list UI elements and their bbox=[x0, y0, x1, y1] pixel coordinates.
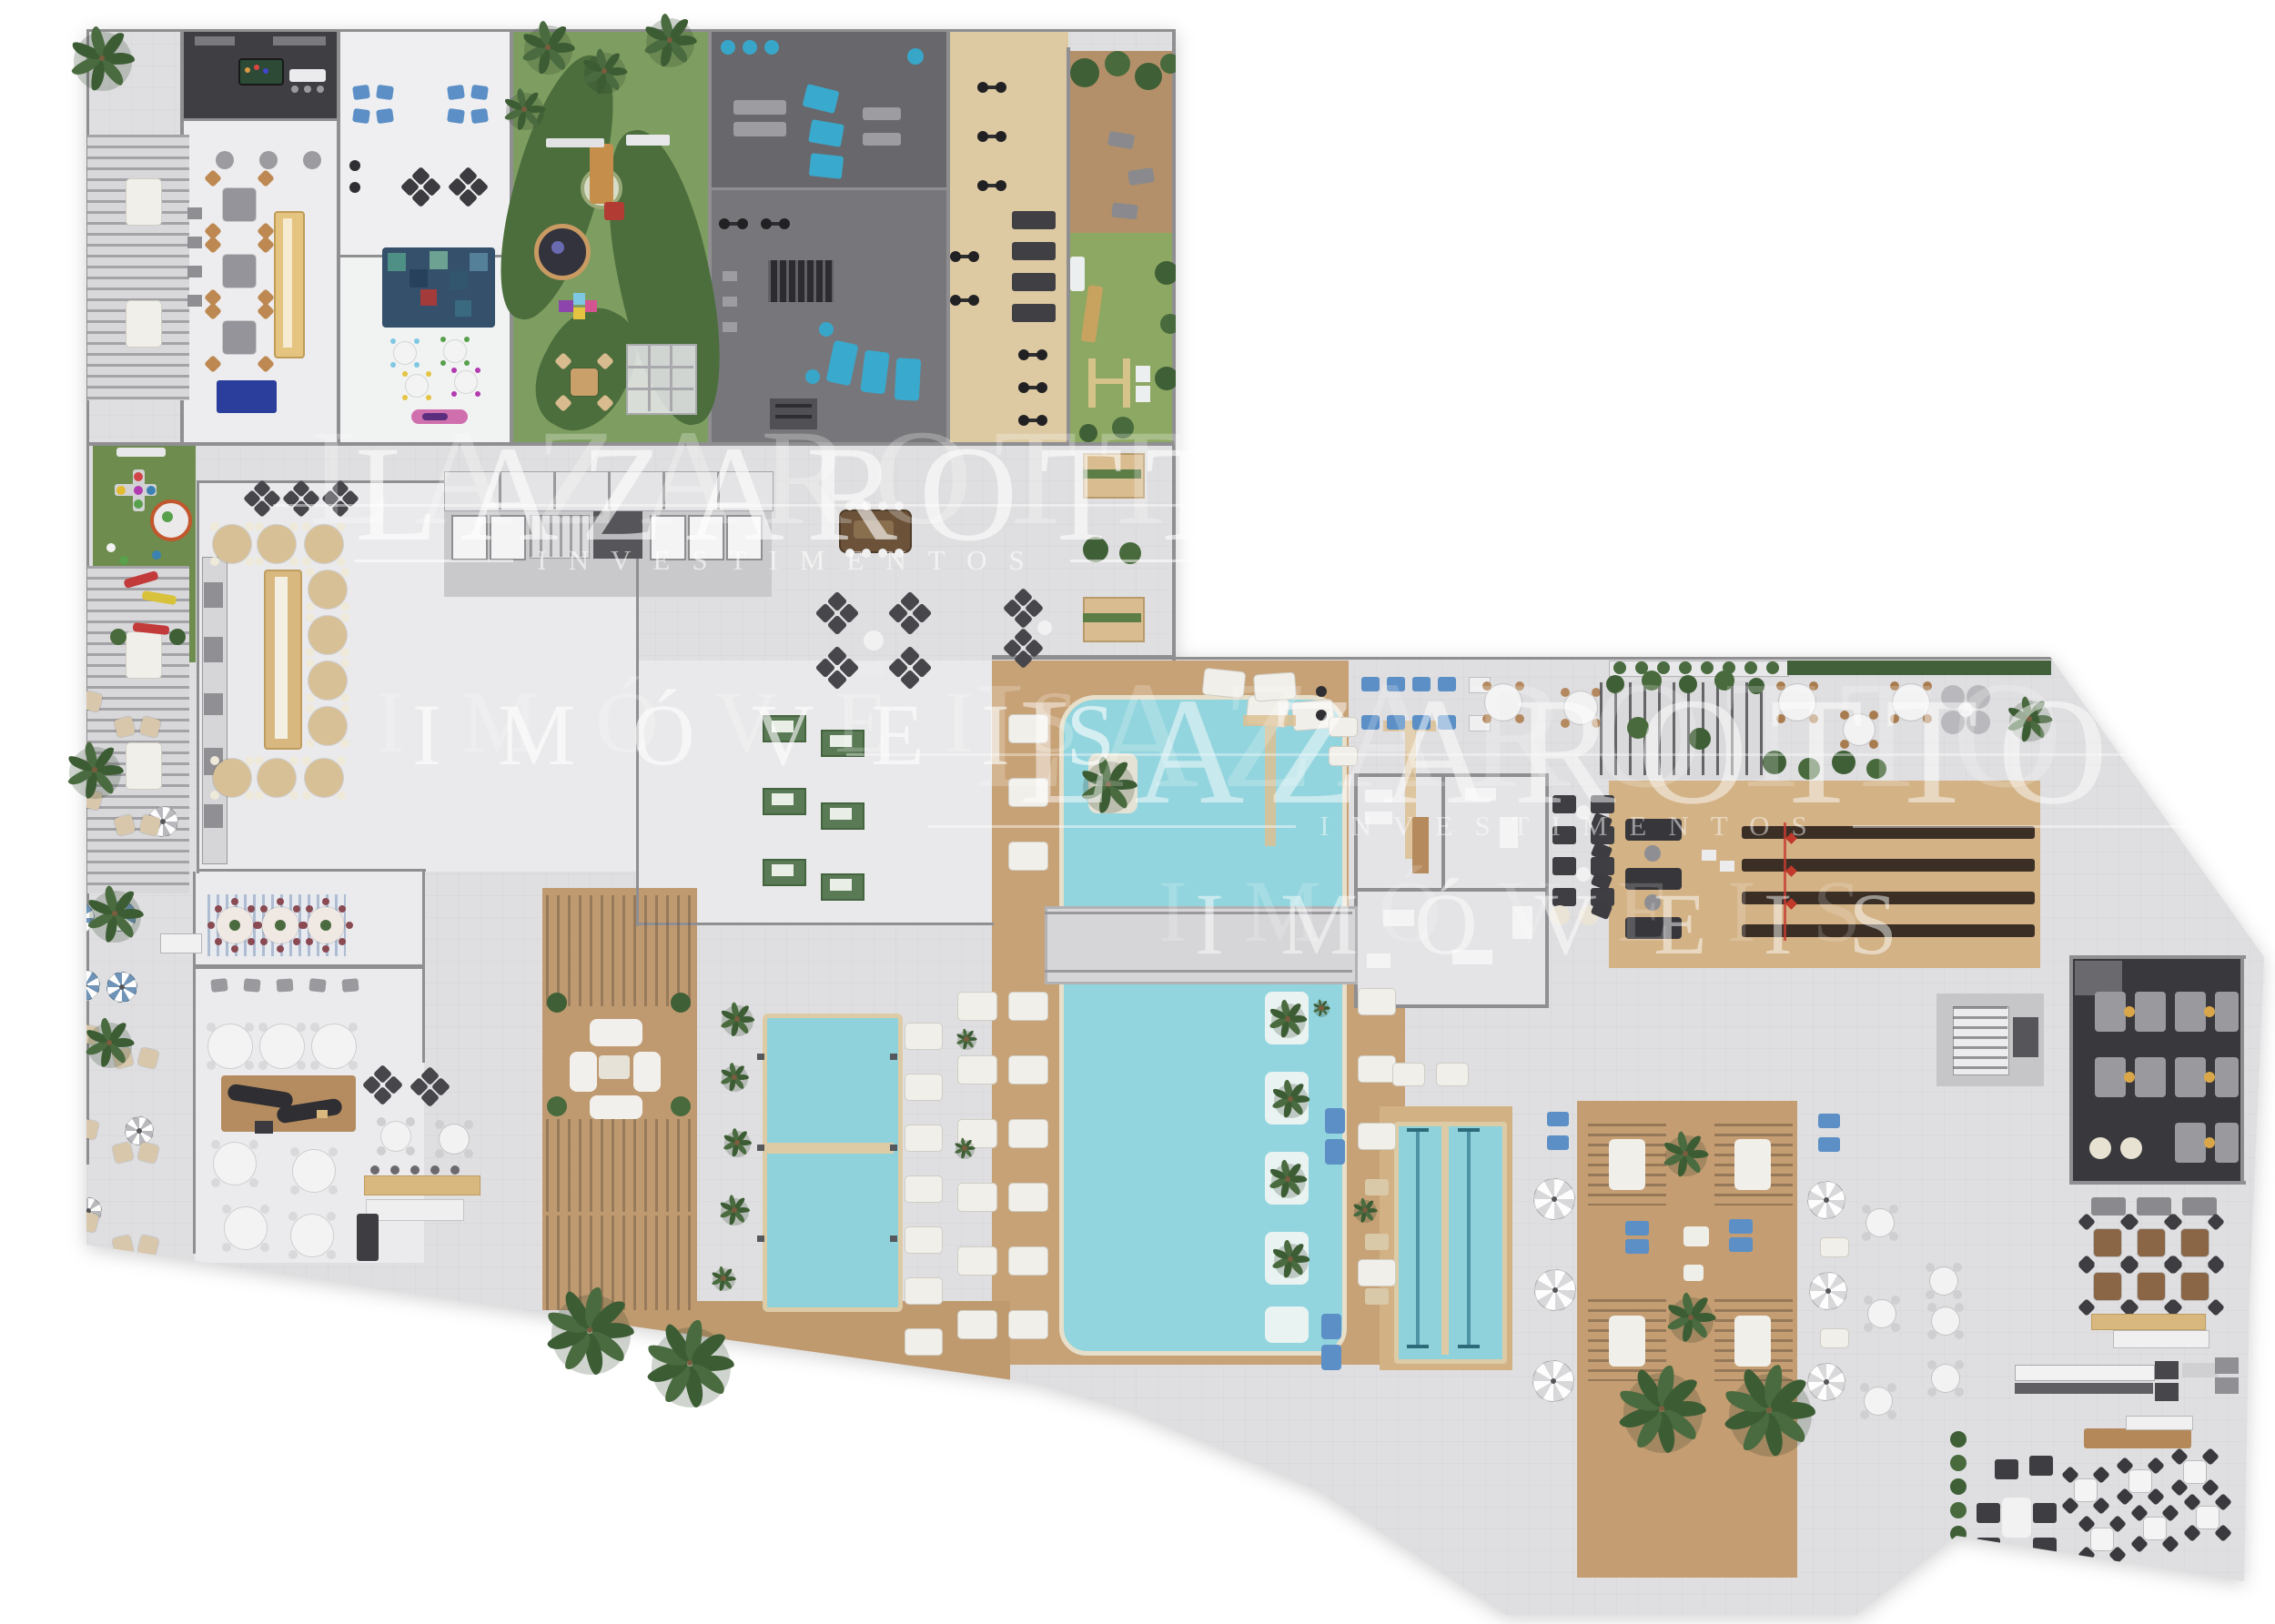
chair bbox=[231, 898, 238, 905]
circ bbox=[450, 1165, 460, 1175]
rect bbox=[2135, 1057, 2166, 1097]
slat bbox=[768, 260, 834, 302]
table-top bbox=[455, 371, 477, 393]
sun-lounger bbox=[957, 1183, 997, 1212]
chair bbox=[215, 938, 222, 945]
square-table bbox=[207, 238, 272, 304]
table-top bbox=[213, 759, 251, 797]
chair bbox=[426, 371, 431, 377]
rect bbox=[1591, 795, 1614, 813]
circ bbox=[2204, 1006, 2215, 1017]
table-top bbox=[394, 342, 416, 364]
table-top bbox=[223, 188, 256, 221]
circ bbox=[147, 486, 156, 495]
rect bbox=[2175, 1057, 2206, 1097]
wall bbox=[86, 27, 1178, 32]
rect bbox=[1438, 715, 1456, 730]
rect bbox=[757, 1054, 764, 1060]
rect bbox=[830, 735, 852, 747]
weight bbox=[719, 218, 730, 229]
circ bbox=[1950, 1502, 1967, 1518]
pool-divider bbox=[763, 1143, 894, 1154]
chair-cluster bbox=[318, 476, 363, 521]
parasol bbox=[1533, 1178, 1575, 1220]
rect bbox=[2155, 1361, 2179, 1379]
circ bbox=[1958, 702, 1973, 717]
sun-lounger bbox=[957, 1055, 997, 1084]
weight bbox=[761, 218, 772, 229]
chair bbox=[306, 938, 313, 945]
rect bbox=[890, 1054, 897, 1060]
chair bbox=[114, 814, 136, 836]
table-top bbox=[2184, 1461, 2206, 1483]
rect bbox=[1265, 1152, 1309, 1205]
wall bbox=[2069, 1181, 2246, 1185]
chair bbox=[257, 236, 275, 254]
rect bbox=[450, 271, 468, 289]
rect bbox=[1367, 953, 1390, 968]
rect bbox=[341, 978, 359, 993]
rect bbox=[757, 1236, 764, 1242]
sun-lounger bbox=[905, 1074, 943, 1101]
table-top bbox=[223, 321, 256, 354]
parasol bbox=[1534, 1269, 1576, 1311]
elevator bbox=[688, 515, 724, 560]
rect bbox=[1467, 1132, 1471, 1345]
chair bbox=[249, 1140, 258, 1149]
circ bbox=[254, 65, 259, 70]
circ bbox=[721, 40, 735, 55]
chair bbox=[464, 1120, 473, 1129]
square-table bbox=[207, 172, 272, 237]
chair bbox=[1891, 1296, 1900, 1305]
rect bbox=[204, 582, 223, 608]
rect bbox=[1729, 1219, 1753, 1234]
chair bbox=[211, 1178, 220, 1187]
circ bbox=[229, 920, 240, 931]
chair bbox=[596, 352, 614, 370]
rect bbox=[2002, 1498, 2031, 1538]
rect bbox=[1407, 1128, 1429, 1132]
table-top bbox=[312, 1024, 356, 1068]
chair bbox=[1889, 1205, 1898, 1214]
rect bbox=[772, 793, 794, 805]
rect bbox=[195, 964, 424, 969]
rect bbox=[210, 978, 227, 993]
chair bbox=[1887, 1410, 1896, 1419]
chair bbox=[475, 391, 480, 397]
rect bbox=[590, 1095, 642, 1119]
rect bbox=[420, 289, 437, 306]
wall bbox=[2069, 955, 2073, 1185]
sun-lounger bbox=[957, 1246, 997, 1276]
rect bbox=[1609, 1316, 1645, 1367]
rect bbox=[1438, 677, 1456, 691]
chair-cluster bbox=[358, 1060, 407, 1109]
weight bbox=[996, 82, 1006, 93]
wall bbox=[197, 869, 426, 872]
parasol bbox=[64, 903, 95, 933]
table-top bbox=[308, 661, 347, 700]
parasol bbox=[1532, 1360, 1574, 1402]
chair-pair bbox=[54, 1025, 99, 1045]
chair bbox=[322, 898, 329, 905]
sun-lounger bbox=[1008, 1310, 1048, 1339]
green-tables-hall bbox=[639, 661, 992, 924]
wood-deck-south bbox=[582, 1301, 1010, 1385]
lap-pool bbox=[1394, 1122, 1507, 1364]
circ bbox=[1701, 661, 1714, 674]
rect bbox=[1452, 950, 1492, 964]
wall bbox=[1441, 773, 1445, 892]
chair bbox=[1890, 714, 1899, 723]
table-top bbox=[1866, 1209, 1894, 1236]
chair-cluster bbox=[811, 641, 864, 694]
chair bbox=[204, 236, 222, 254]
rect bbox=[1365, 1288, 1389, 1305]
sun-lounger bbox=[1358, 1259, 1396, 1286]
chair bbox=[207, 1061, 216, 1070]
chair bbox=[377, 1146, 386, 1155]
circ bbox=[320, 920, 331, 931]
wall bbox=[184, 118, 339, 121]
round-table bbox=[430, 1115, 478, 1163]
chair-cluster bbox=[811, 587, 864, 640]
lounge-room bbox=[339, 29, 511, 257]
chair-pair bbox=[57, 791, 103, 811]
circ bbox=[110, 629, 126, 645]
rect bbox=[633, 1052, 661, 1092]
rect bbox=[195, 36, 235, 45]
rect bbox=[1977, 1538, 2000, 1558]
circ bbox=[1160, 54, 1180, 74]
chair bbox=[255, 791, 264, 800]
circ bbox=[2089, 1137, 2111, 1159]
table-top bbox=[440, 1125, 469, 1154]
sun-lounger bbox=[957, 1310, 997, 1339]
rect bbox=[2215, 1057, 2239, 1097]
table-top bbox=[2094, 1273, 2121, 1300]
rect bbox=[2033, 1503, 2057, 1523]
rect bbox=[1552, 826, 1576, 844]
parasol-pole bbox=[1552, 1196, 1557, 1202]
wall bbox=[1354, 888, 1547, 892]
round-table bbox=[1855, 1378, 1901, 1424]
parasol-pole bbox=[1824, 1379, 1829, 1385]
rect bbox=[1458, 1128, 1480, 1132]
weight bbox=[1018, 415, 1029, 426]
table-top bbox=[1779, 684, 1815, 721]
rect bbox=[1361, 677, 1380, 691]
rect bbox=[830, 879, 852, 891]
chair bbox=[253, 922, 260, 929]
round-table bbox=[1859, 1291, 1905, 1337]
rect bbox=[2182, 1197, 2217, 1215]
weight bbox=[737, 218, 748, 229]
rect bbox=[430, 251, 448, 269]
rect bbox=[733, 100, 786, 115]
rect bbox=[2175, 992, 2206, 1032]
rect bbox=[2091, 1314, 2206, 1330]
chair bbox=[2165, 1256, 2183, 1275]
rect bbox=[1321, 1314, 1341, 1339]
sun-lounger bbox=[1820, 1237, 1849, 1257]
chair bbox=[1561, 719, 1570, 728]
sun-lounger bbox=[1008, 1055, 1048, 1084]
rect bbox=[275, 577, 288, 739]
rect bbox=[648, 344, 651, 411]
circ bbox=[1766, 661, 1779, 674]
chair bbox=[2207, 1213, 2225, 1231]
rect bbox=[1045, 912, 1352, 914]
chair bbox=[340, 739, 349, 748]
chair bbox=[112, 1047, 134, 1069]
chair bbox=[222, 1243, 231, 1252]
sun-lounger bbox=[905, 1328, 943, 1356]
table-top bbox=[258, 759, 296, 797]
rect bbox=[1387, 715, 1405, 730]
table-top bbox=[1930, 1267, 1957, 1295]
chair bbox=[207, 922, 215, 929]
wall bbox=[1354, 773, 1549, 777]
chair bbox=[1887, 1383, 1896, 1392]
chair bbox=[77, 1211, 99, 1233]
chair bbox=[81, 691, 103, 712]
chair bbox=[298, 922, 306, 929]
chair bbox=[1862, 1232, 1871, 1241]
sun-lounger bbox=[126, 178, 162, 226]
circ bbox=[1679, 661, 1692, 674]
rect bbox=[2015, 1383, 2153, 1394]
rect bbox=[1325, 1108, 1345, 1134]
chair-pair bbox=[116, 718, 161, 738]
circ bbox=[878, 549, 887, 558]
chair bbox=[2078, 1213, 2096, 1231]
chair bbox=[390, 338, 396, 344]
rug bbox=[217, 380, 277, 413]
wall bbox=[197, 480, 199, 873]
hedge bbox=[1787, 661, 2051, 675]
rect bbox=[2155, 1383, 2179, 1401]
round-table bbox=[216, 1198, 276, 1258]
sun-lounger bbox=[1358, 1055, 1396, 1083]
rect bbox=[1012, 304, 1056, 322]
wall bbox=[710, 187, 948, 190]
square-table bbox=[2080, 1518, 2124, 1561]
rect bbox=[2215, 1123, 2239, 1163]
table-top bbox=[225, 1207, 267, 1249]
rect bbox=[308, 978, 326, 993]
rect bbox=[1734, 1139, 1771, 1190]
wall bbox=[2069, 955, 2246, 959]
rect bbox=[243, 978, 260, 993]
rect bbox=[599, 1055, 630, 1079]
chair bbox=[52, 1118, 74, 1140]
circ bbox=[1316, 710, 1327, 721]
rect bbox=[1070, 257, 1085, 291]
table-top bbox=[208, 1024, 252, 1068]
rect bbox=[546, 138, 604, 147]
round-table bbox=[1857, 1200, 1903, 1246]
round-table bbox=[1770, 675, 1825, 730]
fence bbox=[1600, 682, 1765, 775]
sun-lounger bbox=[1820, 1328, 1849, 1348]
sun-lounger bbox=[1329, 746, 1358, 766]
rect bbox=[854, 520, 894, 539]
chair bbox=[339, 938, 346, 945]
chair bbox=[349, 1061, 358, 1070]
sun-lounger bbox=[126, 300, 162, 348]
rect bbox=[2091, 1197, 2126, 1215]
rect bbox=[590, 1019, 642, 1046]
rect bbox=[1265, 1232, 1309, 1285]
circ bbox=[304, 86, 311, 93]
lane-divider bbox=[1441, 1122, 1449, 1355]
rect bbox=[1702, 850, 1716, 861]
weight bbox=[968, 251, 979, 262]
rect bbox=[1625, 917, 1682, 939]
chair bbox=[258, 1061, 268, 1070]
rect bbox=[573, 308, 585, 319]
circ bbox=[1576, 867, 1591, 882]
chair bbox=[1927, 1330, 1936, 1339]
circ bbox=[152, 550, 161, 560]
split-pool bbox=[763, 1014, 903, 1312]
rect bbox=[2137, 1197, 2171, 1215]
weight bbox=[779, 218, 790, 229]
circ bbox=[1112, 417, 1134, 439]
weight bbox=[1018, 382, 1029, 393]
circ bbox=[1642, 671, 1662, 691]
circ bbox=[743, 40, 757, 55]
circ bbox=[1866, 759, 1886, 779]
round-table bbox=[205, 1134, 265, 1194]
rect bbox=[422, 413, 448, 420]
chair bbox=[337, 791, 346, 800]
circ bbox=[410, 1165, 420, 1175]
round-table bbox=[1921, 1258, 1967, 1304]
weight bbox=[950, 251, 961, 262]
rect bbox=[1720, 861, 1734, 872]
rect bbox=[1012, 242, 1056, 260]
circ bbox=[1950, 1455, 1967, 1471]
wall bbox=[337, 27, 340, 446]
rect bbox=[357, 1214, 379, 1261]
circ bbox=[764, 40, 779, 55]
parasol bbox=[106, 901, 136, 932]
chair bbox=[2165, 1213, 2183, 1231]
chair bbox=[210, 791, 219, 800]
rect bbox=[775, 404, 812, 408]
ladder bbox=[626, 135, 670, 146]
chair bbox=[390, 362, 396, 368]
circ bbox=[551, 241, 564, 254]
chair bbox=[257, 355, 275, 373]
climber bbox=[626, 344, 697, 415]
table-top bbox=[258, 525, 296, 563]
rect bbox=[830, 808, 852, 820]
table-top bbox=[1485, 684, 1522, 721]
chair bbox=[1864, 1323, 1873, 1332]
chair bbox=[340, 704, 349, 713]
circ bbox=[1613, 661, 1626, 674]
wall bbox=[946, 27, 950, 446]
circ bbox=[805, 369, 820, 384]
rect bbox=[772, 721, 794, 732]
round-table bbox=[1923, 1356, 1968, 1401]
wall bbox=[1172, 27, 1176, 661]
sun-lounger bbox=[1008, 1119, 1048, 1148]
chair bbox=[52, 1024, 74, 1045]
sun-lounger bbox=[1008, 842, 1048, 871]
rect bbox=[1552, 888, 1576, 906]
rect bbox=[447, 108, 465, 124]
table-top bbox=[308, 616, 347, 654]
rect bbox=[585, 300, 597, 312]
rect bbox=[1729, 1237, 1753, 1252]
weight bbox=[1036, 415, 1047, 426]
rect bbox=[1512, 906, 1532, 939]
chair-cluster bbox=[405, 1062, 454, 1111]
circ bbox=[1679, 675, 1697, 693]
slat bbox=[530, 515, 588, 557]
rect bbox=[723, 322, 737, 332]
circ bbox=[291, 86, 298, 93]
pool-bar bbox=[364, 1175, 480, 1195]
circ bbox=[263, 68, 268, 74]
chair bbox=[340, 568, 349, 577]
chair-cluster bbox=[443, 162, 492, 211]
chair bbox=[204, 302, 222, 320]
sun-lounger bbox=[1008, 992, 1048, 1021]
chair bbox=[81, 789, 103, 811]
table-top bbox=[2138, 1229, 2165, 1256]
table-top bbox=[2094, 1229, 2121, 1256]
rect bbox=[723, 271, 737, 281]
table-top bbox=[293, 1150, 335, 1192]
circ bbox=[303, 151, 321, 169]
round-table bbox=[1476, 675, 1531, 730]
rect bbox=[1265, 992, 1309, 1044]
rect bbox=[1265, 726, 1276, 846]
rect bbox=[723, 297, 737, 307]
rect bbox=[1465, 788, 1496, 801]
elevator bbox=[726, 515, 763, 560]
circ bbox=[1748, 678, 1764, 694]
rect bbox=[573, 293, 585, 305]
chair bbox=[137, 1235, 159, 1256]
rect bbox=[1625, 868, 1682, 890]
rect bbox=[890, 1145, 897, 1151]
circ bbox=[1714, 671, 1734, 691]
rect bbox=[895, 358, 921, 400]
weight bbox=[996, 180, 1006, 191]
table-top bbox=[2138, 1273, 2165, 1300]
rect bbox=[187, 207, 202, 219]
sun-lounger bbox=[126, 631, 162, 679]
rect bbox=[1609, 1139, 1645, 1190]
chair bbox=[204, 355, 222, 373]
slat bbox=[546, 895, 693, 1006]
rect bbox=[1995, 1459, 2018, 1479]
sun-lounger bbox=[1008, 1183, 1048, 1212]
chair bbox=[2207, 1298, 2225, 1316]
rect bbox=[1361, 715, 1380, 730]
gym-machine bbox=[1018, 381, 1047, 394]
gym-machine bbox=[950, 294, 979, 307]
rect bbox=[2015, 1365, 2155, 1381]
parasol-pole bbox=[119, 984, 125, 990]
